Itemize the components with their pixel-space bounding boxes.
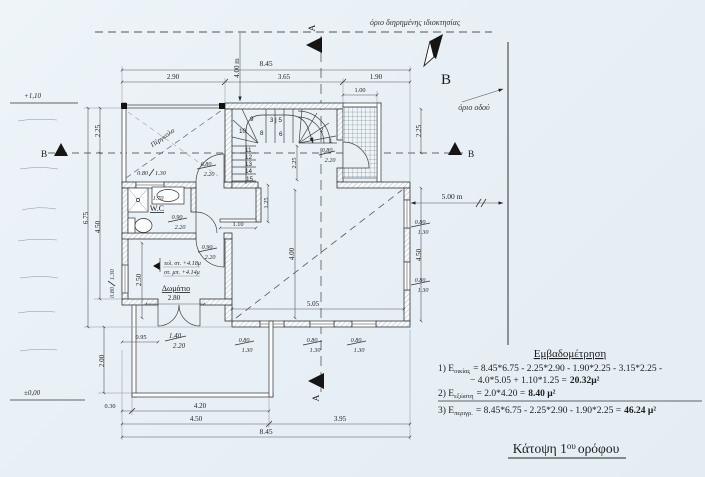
floor-plan-drawing: όριο διηρημένης ιδιοκτησίας όριο οδού B … [0,0,705,477]
property-boundary-label: όριο διηρημένης ιδιοκτησίας [370,18,461,27]
section-b-label-left: B [41,150,47,160]
svg-text:2.20: 2.20 [173,342,186,350]
dim-top-total: 8.45 [259,59,272,68]
south-window-3-label: 0.80 1.30 [347,337,366,354]
main-room-height-dim: 4.00 [288,247,296,260]
wc-window-label: 0.80 1.30 [137,169,167,177]
south-window-2-label: 0.80 1.30 [303,337,322,354]
dim-right-b: 4.50 [415,248,423,261]
svg-text:8: 8 [260,130,264,137]
bedroom-labels: τελ. στ. +4.18μ στ. μπ. +4.14μ Δωμάτιο 2… [135,243,204,318]
road-boundary: όριο οδού [458,42,508,345]
upper-balcony [343,107,377,178]
svg-text:2.20: 2.20 [325,157,337,164]
pergola-post [219,103,225,109]
dim-bottom-c: 4.50 [190,415,203,423]
dim-bottom-total: 8.45 [259,427,272,436]
wc-dim-label: 1.70 [153,195,165,202]
terrain-hatch [18,119,58,351]
dim-left-c: 2.00 [98,354,106,367]
east-window-1 [404,200,410,228]
level-flag-icon [153,262,160,270]
pergola-label: Πέργκολα [148,126,176,149]
dim-left-a: 2.25 [94,124,102,137]
floor-plan-sheet: όριο διηρημένης ιδιοκτησίας όριο οδού B … [0,0,705,477]
svg-text:1.30: 1.30 [242,347,254,354]
stair-walk-line [246,115,313,184]
door-offset-dim: 0.95 [135,334,146,341]
west-window [122,265,128,293]
east-window-2-label: 0.80 1.30 [411,277,430,294]
section-a-label-bottom: A [312,394,322,401]
svg-text:0.80: 0.80 [109,286,116,298]
wc-door: 0.90 2.20 [168,212,217,233]
property-boundary: όριο διηρημένης ιδιοκτησίας [95,18,492,32]
svg-text:1.30: 1.30 [418,229,430,236]
dim-bottom-b: 4.20 [194,402,207,410]
stair-width-dim: 1.10 [232,221,243,228]
toilet-icon [128,218,135,233]
dim-top-b: 3.65 [278,73,291,81]
svg-text:1.30: 1.30 [354,347,366,354]
east-window-2 [404,262,410,290]
floor-level-finished: τελ. στ. +4.18μ [164,260,201,267]
svg-text:1.30: 1.30 [155,170,167,177]
dim-right-offset: 5.00 m [442,192,463,201]
svg-text:14: 14 [245,168,253,175]
dim-top-balcony: 1.00 [354,87,365,94]
north-label: B [441,72,451,88]
north-arrow-icon: B [424,34,451,88]
svg-text:12: 12 [245,154,253,161]
svg-text:1.30: 1.30 [310,347,322,354]
svg-text:6: 6 [279,131,283,138]
svg-text:9: 9 [250,116,254,123]
west-window-label: 0.80 1.30 [108,268,116,298]
bedroom-label: Δωμάτιο [162,284,190,293]
svg-text:13: 13 [245,161,253,168]
area-line-3: 3) Eπεριγρ.= 8.45*6.75 - 2.25*2.90 - 1.9… [438,405,656,417]
level-ground: ±0,00 [24,389,41,397]
page-title: Κάτοψη 1ουορόφου [513,441,620,456]
section-b-marker-right [448,142,462,155]
svg-text:2: 2 [320,127,324,134]
area-line-2: 2) Eεξώστη= 2.0*4.20 =8.40 μ² [438,388,556,400]
dim-left-b: 4.50 [94,220,102,233]
svg-text:1.30: 1.30 [418,287,430,294]
dim-top-a: 2.90 [167,73,180,81]
pergola-door: 0.80 2.20 [196,154,224,182]
stair-balcony-door-label: 0.80 2.20 [319,147,336,164]
svg-text:0.80: 0.80 [137,170,149,177]
section-line-a: A A [306,24,324,401]
section-a-marker-bottom [308,373,324,389]
bedroom-width-dim: 2.80 [168,294,181,302]
bedroom-height-dim: 2.50 [135,273,143,286]
dim-setback: 4.00 m [233,58,241,78]
area-computation-block: Εμβαδομέτρηση 1) Eοικίας= 8.45*6.75 - 2.… [438,348,702,417]
south-window-2 [310,321,334,327]
section-b-label-right: B [468,150,474,160]
svg-text:10: 10 [239,128,247,135]
road-boundary-label: όριο οδού [458,103,490,112]
dim-bottom-a: 0.30 [104,403,115,410]
section-b-marker-left [54,143,68,156]
area-line-1b: − 4.0*5.05 + 1.10*1.25 =20.32μ² [470,376,600,386]
svg-text:2.20: 2.20 [175,224,187,231]
south-window-3 [352,321,376,327]
main-room-width-dim: 5.05 [307,300,320,308]
section-a-label-top: A [308,24,318,31]
stair-mid-dim: 2.25 [291,157,298,168]
section-a-marker-top [306,37,322,53]
svg-text:11: 11 [245,147,252,154]
svg-text:2.20: 2.20 [205,254,217,261]
balcony-double-door: 1.40 2.20 [158,305,200,350]
area-line-1: 1) Eοικίας= 8.45*6.75 - 2.25*2.90 - 1.90… [438,363,662,375]
level-upper: +1,10 [24,92,41,100]
dim-left-total: 6.75 [82,211,90,224]
stair-step-number: 15 [246,176,254,183]
dim-bottom-d: 3.95 [334,415,347,423]
dim-right-a: 2.25 [415,124,423,137]
stairs: 15 14 13 12 11 10 9 8 6 3 | 5 2 1 2.25 1… [220,109,337,228]
wc-label: W.C [150,204,164,213]
svg-text:2.20: 2.20 [204,171,216,178]
stair-landing-dim: 1.25 [263,197,270,208]
level-marks: +1,10 ±0,00 [10,92,85,400]
section-line-b: B B [41,142,474,160]
svg-text:1: 1 [329,138,333,145]
svg-text:1.30: 1.30 [109,268,116,280]
south-window-1-label: 0.80 1.30 [235,337,254,354]
area-block-heading: Εμβαδομέτρηση [534,348,607,360]
floor-level-structural: στ. μπ. +4.14μ [164,269,200,276]
sheet-title: Κάτοψη 1ουορόφου [508,441,626,458]
east-window-1-label: 0.80 1.30 [411,219,430,236]
svg-text:3 | 5: 3 | 5 [270,117,283,124]
dim-top-c: 1.90 [370,73,383,81]
